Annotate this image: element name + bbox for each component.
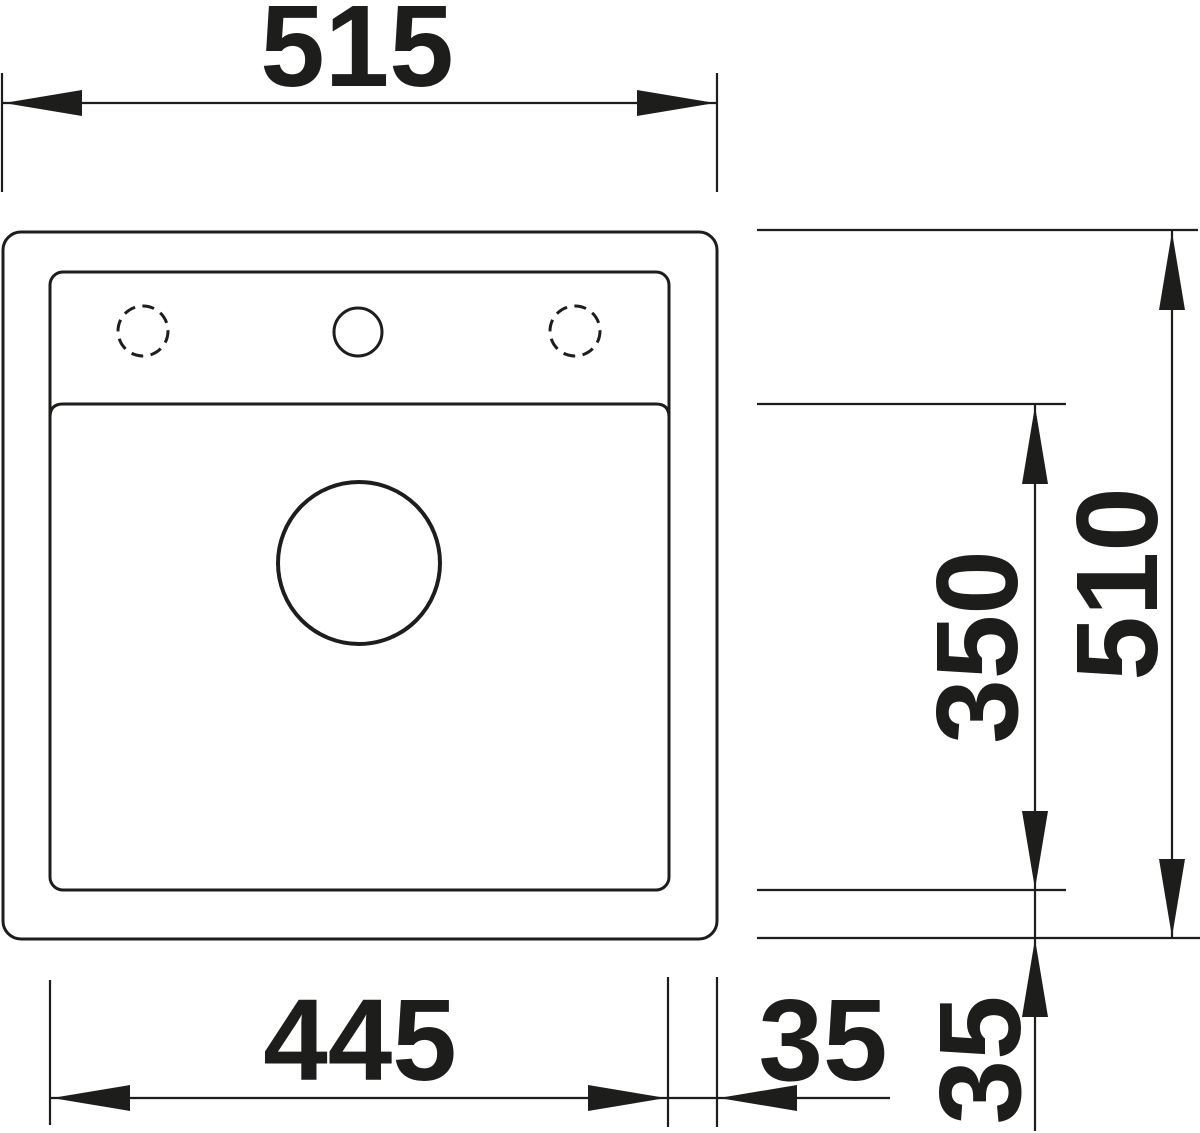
arrowhead-up-icon: [1022, 406, 1048, 484]
arrowhead-up-icon: [1159, 232, 1185, 310]
dim-label-offset-bottom: 35: [915, 995, 1045, 1124]
sink-outline-group: [3, 232, 717, 939]
arrowhead-left-icon: [52, 1085, 130, 1111]
arrowhead-down-icon: [1022, 811, 1048, 889]
arrowhead-right-icon: [588, 1085, 666, 1111]
bowl-top-edge: [50, 404, 669, 417]
dim-label-bowl-width: 445: [263, 975, 457, 1105]
dimension-overall-width: 515: [2, 0, 717, 192]
sink-dimension-drawing: 515 510 350 35: [0, 0, 1200, 1133]
technical-drawing-canvas: 515 510 350 35: [0, 0, 1200, 1133]
dim-label-offset-right: 35: [758, 975, 887, 1105]
dim-label-overall-width: 515: [260, 0, 454, 111]
arrowhead-right-icon: [637, 90, 715, 116]
tap-hole-center-icon: [334, 308, 382, 356]
dimension-bowl-width-and-right-offset: 445 35: [50, 975, 890, 1127]
arrowhead-down-icon: [1159, 859, 1185, 937]
tap-hole-right-optional-icon: [550, 306, 600, 356]
tap-hole-left-optional-icon: [118, 306, 168, 356]
dim-label-bowl-depth: 350: [912, 550, 1042, 744]
dim-label-overall-depth: 510: [1052, 487, 1182, 681]
drain-circle: [278, 482, 440, 644]
arrowhead-left-icon: [4, 90, 82, 116]
sink-outer-outline: [3, 232, 717, 939]
sink-rim-inner-outline: [50, 272, 669, 890]
